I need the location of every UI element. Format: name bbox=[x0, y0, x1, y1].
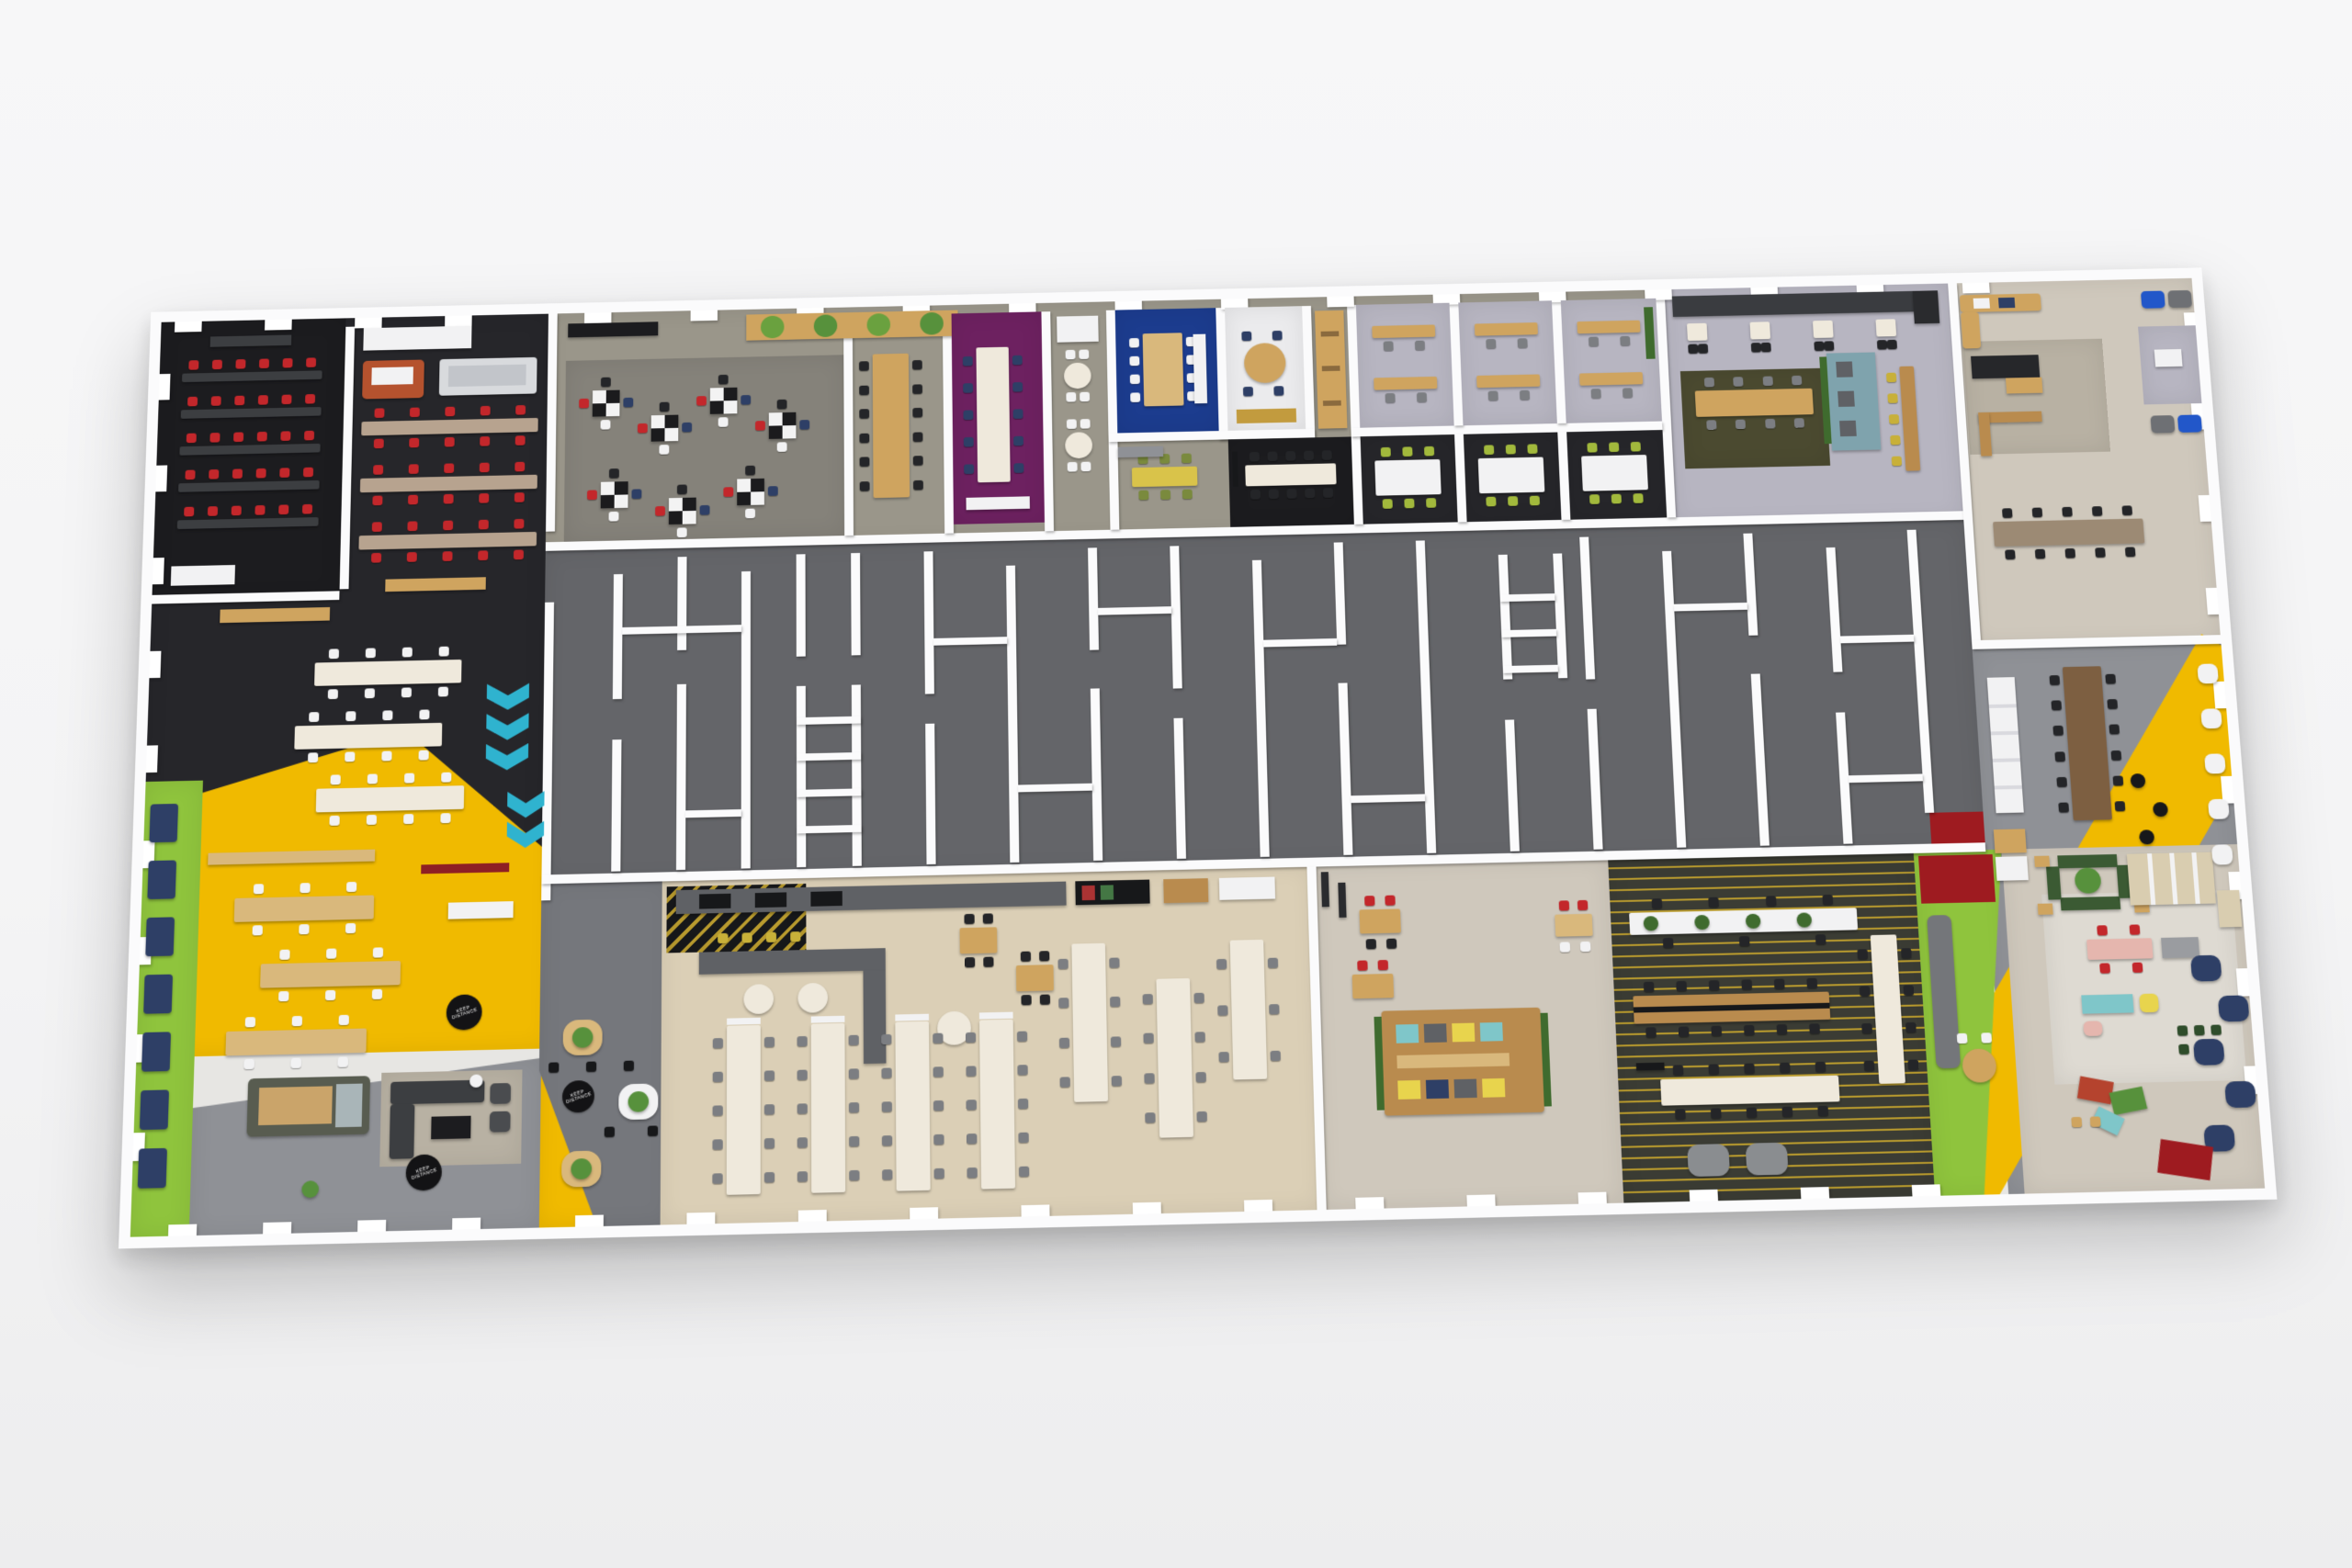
canteen-white-table-chair bbox=[345, 751, 355, 761]
kitchen-stool-table bbox=[1687, 323, 1708, 341]
house-panel bbox=[1482, 1078, 1505, 1098]
canteen-white-table-chair bbox=[381, 750, 391, 761]
vending-front bbox=[1081, 886, 1094, 900]
training-desk-row-chair bbox=[481, 406, 491, 416]
vending-front bbox=[1101, 885, 1114, 899]
house-panel bbox=[1480, 1022, 1503, 1042]
kitchen-community-table-chair bbox=[1794, 418, 1804, 428]
training-desk-row-chair bbox=[407, 521, 417, 531]
kitchen-stool-table-chair bbox=[1887, 340, 1897, 350]
island-top bbox=[1836, 361, 1853, 377]
canteen-long-table-chair bbox=[1217, 1005, 1227, 1015]
kitchen-stool-table-chair bbox=[1698, 344, 1708, 354]
canteen-long-table-chair bbox=[933, 1032, 943, 1043]
auditorium-desk-row-chair bbox=[281, 395, 291, 405]
white-armchair bbox=[2208, 799, 2230, 819]
rustic-long-table-chair bbox=[2110, 750, 2121, 761]
training-desk-row-chair bbox=[443, 521, 453, 531]
team-desk bbox=[1577, 321, 1640, 334]
trefoil-chairs bbox=[624, 1061, 634, 1071]
sofa-cushion bbox=[1973, 298, 1990, 309]
chevron-arrow bbox=[507, 821, 545, 849]
cafeteria-checker-table-chair bbox=[745, 466, 755, 476]
training-desk-row-chair bbox=[407, 552, 417, 562]
kitchen-dark-cabinet bbox=[1913, 290, 1940, 323]
green-zone-chairs bbox=[1957, 1033, 1968, 1043]
long-white-table-chair bbox=[1675, 1109, 1686, 1120]
auditorium-desk-row-chair bbox=[210, 433, 220, 443]
canteen-long-table-chair bbox=[1268, 957, 1278, 967]
canteen-long-table-chair bbox=[967, 1167, 977, 1178]
yellow-zone-table bbox=[260, 961, 401, 988]
team-room-lilac-floor bbox=[1356, 303, 1454, 428]
gray-pod-sofa bbox=[1746, 1143, 1789, 1176]
training-desk-row-chair bbox=[371, 553, 381, 563]
training-desk-row-chair bbox=[445, 437, 455, 447]
square-wood-table-chair bbox=[1039, 951, 1049, 961]
display-board bbox=[1338, 883, 1346, 918]
tv-stand bbox=[1636, 1063, 1665, 1071]
island-top bbox=[1839, 421, 1857, 436]
auditorium-screen bbox=[210, 335, 292, 347]
table-screen bbox=[811, 1016, 845, 1023]
canteen-long-table-chair bbox=[1216, 958, 1227, 968]
core-wall bbox=[611, 739, 621, 872]
long-wood-table-chair bbox=[1809, 1023, 1820, 1033]
canteen-long-table-chair bbox=[849, 1169, 859, 1180]
purple-room-table-chair bbox=[963, 410, 973, 420]
project-desk-pod-chair bbox=[1589, 494, 1599, 504]
kitchen-stool-table-chair bbox=[1761, 343, 1771, 353]
decal-text: KEEP DISTANCE bbox=[446, 1002, 482, 1022]
core-cell bbox=[1499, 593, 1555, 602]
canteen-white-table-chair bbox=[364, 688, 374, 698]
core-wall bbox=[741, 571, 751, 869]
cafeteria-checker-table-chair bbox=[623, 398, 633, 408]
training-desk-row-chair bbox=[372, 496, 382, 506]
kitchen-bar-table-chair bbox=[1887, 393, 1897, 403]
kitchen-community-table-chair bbox=[1736, 420, 1746, 430]
canteen-long-table-chair bbox=[1057, 958, 1068, 968]
window-pillars-right bbox=[2213, 682, 2230, 709]
boardroom-table bbox=[1245, 463, 1336, 486]
long-wood-table-chair bbox=[1741, 979, 1752, 989]
benching-planter-spine-chair bbox=[1766, 896, 1777, 906]
long-white-table-chair bbox=[1710, 1108, 1721, 1119]
long-white-table-chair bbox=[1744, 1064, 1755, 1074]
wood-credenza bbox=[220, 607, 330, 623]
cafeteria-checker-table-chair bbox=[741, 395, 751, 405]
white-armchair bbox=[2197, 663, 2219, 683]
canteen-long-table-chair bbox=[933, 1066, 944, 1077]
trefoil-chairs bbox=[586, 1061, 596, 1071]
kitchen-community-table-chair bbox=[1765, 419, 1775, 429]
canteen-white-table-chair bbox=[328, 649, 338, 659]
purple-room-table-chair bbox=[964, 437, 974, 447]
window-booth-navy bbox=[149, 804, 178, 842]
meeting-room-long-table-chair bbox=[860, 457, 870, 468]
reception-bench-table-chair bbox=[2035, 549, 2046, 559]
pink-table bbox=[2086, 938, 2153, 960]
canteen-white-table-chair bbox=[330, 774, 340, 784]
canteen-long-table-chair bbox=[713, 1071, 723, 1081]
purple-room-table-chair bbox=[963, 356, 973, 367]
canteen-white-table-chair bbox=[437, 687, 447, 697]
auditorium-desk-row-chair bbox=[233, 432, 243, 442]
screen-booth-inner bbox=[448, 365, 526, 387]
canteen-white-table bbox=[316, 785, 465, 812]
square-wood-table-chair bbox=[982, 913, 992, 923]
floor-plan: KEEP DISTANCEKEEP DISTANCEKEEP DISTANCE bbox=[119, 267, 2278, 1248]
gray-ottoman bbox=[2167, 290, 2192, 308]
canteen-long-table-chair bbox=[882, 1135, 892, 1146]
kitchenette-yellow-table-chair bbox=[1181, 454, 1191, 464]
trefoil-chairs bbox=[648, 1125, 658, 1136]
stone-zone-table bbox=[1555, 914, 1593, 937]
window-pillars-right bbox=[2206, 588, 2222, 615]
purple-room-table-chair bbox=[964, 464, 974, 474]
canteen-long-table-chair bbox=[1195, 1072, 1205, 1082]
window-pillars-bottom bbox=[1690, 1190, 1719, 1205]
window-pillars-leftwing-bottom bbox=[452, 1218, 481, 1234]
auditorium-desk-row-chair bbox=[232, 468, 243, 479]
cafeteria-checker-table-chair bbox=[638, 423, 648, 434]
canteen-long-table-chair bbox=[849, 1034, 859, 1044]
rustic-long-table-chair bbox=[2112, 775, 2123, 785]
long-white-table-chair bbox=[1781, 1107, 1792, 1118]
boardroom-table-chair bbox=[1286, 489, 1296, 499]
stone-zone-chairs bbox=[1386, 939, 1397, 949]
vertical-white-table-chair bbox=[1860, 986, 1871, 996]
canteen-long-table bbox=[979, 1020, 1015, 1190]
canteen-white-table-chair bbox=[329, 816, 339, 826]
stone-zone-table bbox=[1359, 908, 1400, 933]
auditorium-desk-row-chair bbox=[211, 396, 221, 406]
canteen-white-table-chair bbox=[441, 773, 451, 783]
kitchen-community-table-chair bbox=[1733, 377, 1743, 387]
canteen-long-table-chair bbox=[712, 1173, 722, 1184]
canteen-long-table-chair bbox=[797, 1103, 808, 1114]
square-wood-table-chair bbox=[1020, 952, 1030, 962]
cafeteria-checker-table-chair bbox=[660, 402, 670, 412]
core-wall bbox=[925, 724, 935, 864]
rustic-long-table-chair bbox=[2105, 673, 2116, 683]
team-desk-chair bbox=[1415, 341, 1425, 351]
yellow-zone-table bbox=[225, 1029, 367, 1056]
food-display-case bbox=[699, 894, 730, 909]
rustic-long-table-chair bbox=[2107, 699, 2118, 709]
long-wood-table-chair bbox=[1806, 978, 1817, 988]
reception-bench-table-chair bbox=[2095, 547, 2106, 558]
training-desk-row-chair bbox=[515, 435, 526, 446]
cafeteria-checker-table-chair bbox=[768, 486, 778, 496]
window-pillars-leftwing-top bbox=[355, 314, 382, 329]
team-desk bbox=[1372, 324, 1435, 338]
house-panel bbox=[1396, 1024, 1419, 1043]
stone-zone-chairs bbox=[1366, 939, 1377, 949]
square-wood-table-chair bbox=[983, 957, 993, 967]
yellow-zone-table-chair bbox=[300, 883, 310, 893]
meeting-room-long-table bbox=[873, 354, 910, 498]
team-desk-chair bbox=[1623, 388, 1633, 398]
training-desk-row-chair bbox=[372, 522, 382, 532]
cafeteria-checker-table-chair bbox=[659, 445, 669, 455]
training-desk-row-chair bbox=[479, 493, 489, 503]
canteen-long-table-chair bbox=[1196, 1111, 1207, 1122]
cafeteria-checker-table-chair bbox=[745, 509, 755, 519]
boardroom-table-chair bbox=[1322, 488, 1332, 498]
meeting-room-long-table-chair bbox=[913, 480, 923, 491]
meeting-room-long-table-chair bbox=[912, 360, 922, 370]
food-display-case bbox=[755, 892, 786, 908]
canteen-white-table-chair bbox=[418, 750, 428, 761]
boardroom-table-chair bbox=[1285, 451, 1295, 461]
canteen-white-table-chair bbox=[367, 773, 377, 784]
stone-zone-table bbox=[1352, 974, 1395, 998]
team-desk bbox=[1475, 322, 1538, 336]
chevron-arrow bbox=[486, 743, 529, 771]
kitchen-community-table bbox=[1695, 389, 1814, 417]
team-desk-chair bbox=[1620, 336, 1630, 346]
training-desk-row-chair bbox=[514, 549, 524, 559]
long-wood-table-chair bbox=[1709, 980, 1720, 990]
kitchenette-yellow-table-chair bbox=[1182, 490, 1192, 500]
window-pillars-top bbox=[691, 307, 718, 321]
pink-table-chair bbox=[2132, 963, 2143, 973]
table-screen bbox=[979, 1012, 1013, 1020]
training-desk-row-chair bbox=[410, 408, 420, 418]
window-pillars-bottom bbox=[1133, 1202, 1161, 1218]
long-white-table-chair bbox=[1815, 1062, 1826, 1072]
canteen-white-table-chair bbox=[307, 752, 317, 762]
window-booth-navy bbox=[147, 860, 176, 899]
canteen-white-table bbox=[294, 723, 442, 750]
round-cafe-table-chair bbox=[1080, 462, 1091, 472]
core-wall bbox=[851, 553, 861, 656]
round-cafe-table-chair bbox=[1080, 419, 1091, 429]
canteen-long-table-chair bbox=[849, 1101, 859, 1112]
project-desk-pod-chair bbox=[1529, 496, 1539, 506]
yellow-zone-table-chair bbox=[337, 1056, 347, 1066]
hotdesk-divider bbox=[1991, 731, 2018, 736]
pink-table-chair bbox=[2130, 924, 2141, 934]
auditorium-desk-row-chair bbox=[279, 468, 289, 478]
window-pillars-bottom bbox=[1578, 1192, 1608, 1208]
purple-room-table-chair bbox=[1012, 382, 1023, 392]
round-cafe-table-chair bbox=[1080, 392, 1090, 402]
canteen-white-table-chair bbox=[403, 773, 413, 784]
project-desk-pod bbox=[1581, 455, 1648, 491]
canteen-long-table-chair bbox=[933, 1134, 944, 1145]
window-pillars-top bbox=[1327, 293, 1354, 308]
team-desk-chair bbox=[1486, 339, 1496, 349]
canteen-long-table-chair bbox=[1110, 997, 1120, 1007]
boardroom-tv bbox=[1232, 451, 1238, 486]
cafeteria-checker-table-chair bbox=[587, 490, 597, 500]
blue-ottoman bbox=[2141, 291, 2165, 309]
trapezoid-chairs bbox=[2090, 1116, 2101, 1127]
rustic-long-table-chair bbox=[2115, 801, 2126, 811]
canteen-long-table-chair bbox=[1111, 1036, 1121, 1046]
cafeteria-checker-table bbox=[651, 415, 679, 442]
decal-text: KEEP DISTANCE bbox=[561, 1087, 594, 1106]
boardroom-table-chair bbox=[1305, 489, 1315, 499]
kitchen-community-table-chair bbox=[1792, 376, 1802, 386]
vertical-white-table-chair bbox=[1857, 949, 1868, 959]
window-pillars-bottom bbox=[1355, 1197, 1384, 1213]
wood-shelf-line bbox=[1323, 400, 1341, 406]
yellow-zone-table-chair bbox=[299, 924, 309, 934]
canteen-long-table-chair bbox=[797, 1171, 808, 1182]
yellow-zone-table-chair bbox=[338, 1015, 348, 1025]
round-cafe-table-chair bbox=[1068, 462, 1078, 472]
red-carpet-right bbox=[1918, 854, 1996, 904]
rustic-long-table-chair bbox=[2049, 675, 2060, 685]
canteen-long-table-chair bbox=[1109, 957, 1119, 967]
canteen-white-table-chair bbox=[401, 687, 411, 697]
auditorium-desk-row-chair bbox=[305, 394, 315, 404]
wood-credenza bbox=[385, 577, 486, 592]
team-room-lilac-floor bbox=[1458, 300, 1557, 425]
core-wall bbox=[797, 554, 806, 657]
training-desk-row-chair bbox=[374, 439, 384, 449]
yellow-pouf bbox=[2139, 994, 2159, 1013]
kitchen-bar-table-chair bbox=[1890, 434, 1900, 445]
long-wood-table-chair bbox=[1679, 1026, 1690, 1036]
stone-zone-table-chair bbox=[1377, 960, 1388, 970]
cafeteria-checker-table-chair bbox=[723, 487, 733, 497]
stone-zone-table-chair bbox=[1558, 900, 1569, 910]
house-panel bbox=[1453, 1079, 1476, 1099]
kitchen-community-table-chair bbox=[1762, 377, 1772, 387]
window-pillars-leftwing-top bbox=[175, 318, 202, 333]
green-zone-chairs bbox=[1981, 1032, 1992, 1043]
banquette-counter bbox=[699, 948, 886, 975]
hotdesk-divider bbox=[1989, 704, 2017, 708]
decal-text: KEEP DISTANCE bbox=[405, 1162, 442, 1183]
window-pillars-right bbox=[2199, 495, 2215, 522]
house-panel bbox=[1426, 1079, 1449, 1099]
white-credenza bbox=[448, 901, 514, 919]
hotdesk-divider bbox=[1995, 785, 2022, 790]
meeting-room-long-table-chair bbox=[913, 456, 923, 466]
purple-room-table-chair bbox=[1013, 463, 1023, 473]
canteen-long-table-chair bbox=[797, 1035, 808, 1045]
auditorium-desk-row-chair bbox=[234, 396, 244, 406]
kitchen-stool-table-chair bbox=[1688, 344, 1698, 355]
kitchen-stool-table-chair bbox=[1814, 342, 1824, 352]
yellow-zone-table-chair bbox=[244, 1017, 255, 1027]
green-sofa bbox=[2046, 866, 2062, 899]
training-desk-row-chair bbox=[514, 462, 525, 472]
render-stage: KEEP DISTANCEKEEP DISTANCEKEEP DISTANCE bbox=[0, 0, 2352, 1568]
cafeteria-checker-table bbox=[669, 498, 696, 525]
meeting-room-long-table-chair bbox=[859, 433, 869, 443]
canteen-white-table-chair bbox=[438, 647, 448, 657]
core-wall bbox=[1088, 547, 1099, 649]
benching-planter-spine-chair bbox=[1815, 934, 1826, 944]
blue-room-table bbox=[1143, 333, 1184, 406]
purple-room-table-chair bbox=[1013, 409, 1023, 419]
training-desk-row-chair bbox=[374, 408, 384, 418]
team-desk-chair bbox=[1385, 393, 1396, 403]
cafeteria-checker-table bbox=[601, 481, 628, 508]
canteen-white-table-chair bbox=[440, 813, 450, 823]
reception-bench-table-chair bbox=[2064, 548, 2075, 558]
benching-planter-spine-chair bbox=[1663, 938, 1674, 948]
cafeteria-checker-table-chair bbox=[601, 420, 611, 430]
training-desk-row-chair bbox=[514, 492, 525, 502]
boardroom-table-chair bbox=[1303, 451, 1313, 461]
reception-desk-return bbox=[2006, 378, 2042, 394]
auditorium-desk-row-chair bbox=[278, 504, 288, 514]
canteen-long-table-chair bbox=[1058, 998, 1069, 1008]
kitchen-community-table-chair bbox=[1706, 420, 1716, 430]
yellow-zone-table-chair bbox=[279, 950, 289, 960]
phone-pod-glass bbox=[335, 1084, 363, 1128]
window-pillars-left bbox=[145, 651, 161, 679]
meeting-room-long-table-chair bbox=[859, 361, 869, 371]
auditorium-desk-row-chair bbox=[235, 359, 245, 369]
kitchenette-yellow-table-chair bbox=[1160, 490, 1170, 500]
stone-zone-table-chair bbox=[1364, 896, 1374, 906]
display-board bbox=[1321, 872, 1329, 907]
canteen-long-table bbox=[727, 1025, 761, 1195]
kitchenette-yellow-table bbox=[1132, 467, 1198, 488]
reception-bench-table-chair bbox=[2002, 508, 2013, 518]
dark-green-chairs bbox=[2194, 1025, 2205, 1035]
project-desk-pod-chair bbox=[1508, 496, 1518, 506]
kitchen-stool-table bbox=[1875, 319, 1896, 336]
canteen-long-table-chair bbox=[713, 1038, 723, 1048]
canteen-white-table-chair bbox=[403, 814, 413, 824]
side-cabinet bbox=[2217, 890, 2242, 928]
window-pillars-leftwing-top bbox=[445, 312, 472, 327]
canteen-long-table-chair bbox=[882, 1101, 892, 1112]
auditorium-floor bbox=[152, 318, 345, 602]
canteen-long-table-chair bbox=[1018, 1132, 1028, 1143]
lounge-sofa bbox=[390, 1104, 415, 1159]
auditorium-desk-row-chair bbox=[306, 357, 316, 367]
window-pillars-leftwing-bottom bbox=[357, 1220, 386, 1235]
kitchen-community-table-chair bbox=[1704, 378, 1714, 388]
canteen-long-table-chair bbox=[934, 1168, 944, 1179]
teal-chevron-graphic bbox=[486, 683, 529, 774]
auditorium-desk-row-chair bbox=[232, 506, 242, 516]
window-booth-navy bbox=[145, 917, 175, 956]
canteen-long-table bbox=[811, 1023, 845, 1193]
boardroom-table-chair bbox=[1249, 490, 1260, 500]
core-cell bbox=[1503, 665, 1558, 673]
vertical-white-table-chair bbox=[1905, 1021, 1917, 1032]
auditorium-desk-row-chair bbox=[282, 358, 292, 368]
auditorium-desk-row-chair bbox=[187, 434, 197, 444]
gray-side-table bbox=[2161, 937, 2199, 958]
sofa-cushion bbox=[1998, 298, 2015, 309]
canteen-white-table-chair bbox=[309, 712, 319, 722]
canteen-white-table-chair bbox=[365, 648, 375, 658]
canteen-white-table-chair bbox=[327, 689, 337, 699]
canteen-long-table-chair bbox=[764, 1036, 775, 1046]
banquette-counter bbox=[863, 970, 886, 1064]
canteen-long-table-chair bbox=[764, 1171, 775, 1182]
locker-unit bbox=[1057, 316, 1099, 343]
training-desk-row-chair bbox=[373, 465, 383, 475]
team-desk-chair bbox=[1384, 341, 1394, 351]
yellow-zone-table-chair bbox=[324, 990, 334, 1000]
long-wood-table-chair bbox=[1645, 1027, 1657, 1037]
canteen-long-table-chair bbox=[967, 1100, 977, 1110]
